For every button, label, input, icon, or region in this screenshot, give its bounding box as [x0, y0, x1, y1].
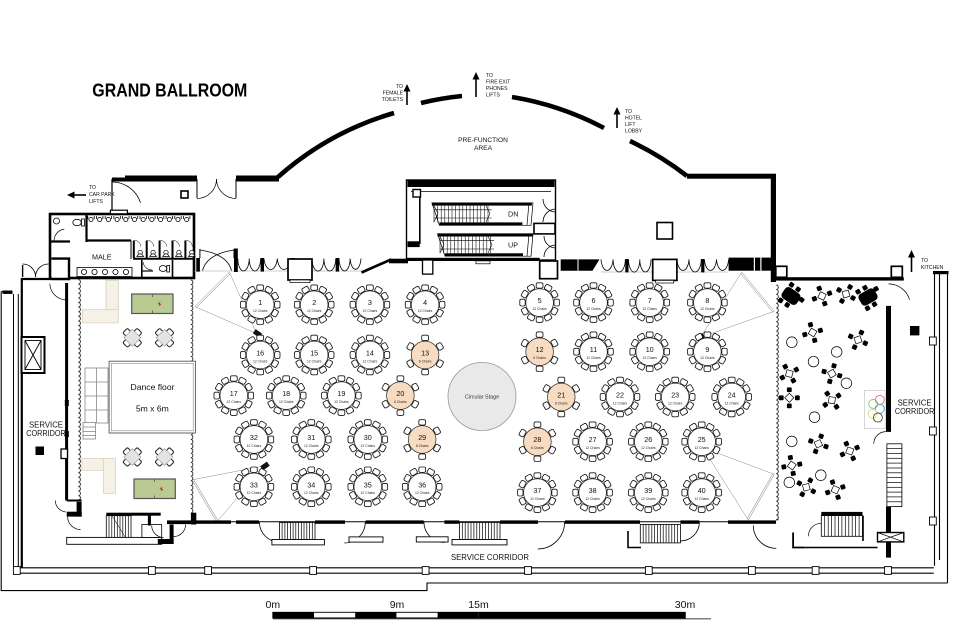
svg-text:TO: TO: [486, 73, 493, 79]
svg-text:12 Chairs: 12 Chairs: [532, 307, 547, 311]
svg-text:12 Chairs: 12 Chairs: [334, 400, 349, 404]
svg-text:17: 17: [230, 389, 238, 398]
svg-text:15: 15: [310, 349, 318, 358]
svg-text:27: 27: [589, 435, 597, 444]
svg-text:12 Chairs: 12 Chairs: [361, 491, 376, 495]
svg-text:11: 11: [590, 345, 597, 354]
svg-text:5m x 6m: 5m x 6m: [136, 403, 169, 413]
svg-text:35: 35: [364, 480, 372, 489]
svg-text:12 Chairs: 12 Chairs: [585, 446, 600, 450]
svg-text:TO: TO: [625, 109, 632, 115]
svg-text:9: 9: [705, 345, 709, 354]
svg-text:32: 32: [250, 433, 258, 442]
svg-text:12 Chairs: 12 Chairs: [700, 307, 715, 311]
svg-text:LIFTS: LIFTS: [486, 93, 500, 99]
svg-text:29: 29: [418, 433, 426, 442]
svg-text:31: 31: [307, 433, 315, 442]
svg-text:0m: 0m: [266, 599, 281, 611]
svg-text:21: 21: [557, 391, 565, 400]
svg-text:12 Chairs: 12 Chairs: [694, 497, 709, 501]
svg-text:10: 10: [646, 345, 654, 354]
svg-text:12 Chairs: 12 Chairs: [253, 309, 268, 313]
svg-text:23: 23: [671, 391, 679, 400]
svg-text:12 Chairs: 12 Chairs: [724, 401, 739, 405]
svg-text:36: 36: [418, 480, 426, 489]
svg-text:LOBBY: LOBBY: [625, 129, 643, 135]
svg-text:12 Chairs: 12 Chairs: [247, 444, 262, 448]
svg-text:TOILETS: TOILETS: [382, 97, 404, 103]
svg-text:12 Chairs: 12 Chairs: [418, 309, 433, 313]
svg-text:12 Chairs: 12 Chairs: [279, 400, 294, 404]
svg-text:12 Chairs: 12 Chairs: [668, 401, 683, 405]
svg-text:12 Chairs: 12 Chairs: [307, 359, 322, 363]
svg-text:12 Chairs: 12 Chairs: [304, 491, 319, 495]
svg-text:12 Chairs: 12 Chairs: [363, 309, 378, 313]
svg-text:FEMALE: FEMALE: [383, 91, 404, 97]
svg-text:20: 20: [396, 389, 404, 398]
svg-text:33: 33: [250, 480, 258, 489]
svg-text:Dance floor: Dance floor: [131, 382, 175, 392]
svg-text:12 Chairs: 12 Chairs: [415, 491, 430, 495]
svg-text:15m: 15m: [468, 599, 489, 611]
svg-text:CORRIDOR: CORRIDOR: [26, 429, 66, 438]
svg-text:TO: TO: [89, 185, 96, 191]
svg-text:12 Chairs: 12 Chairs: [363, 359, 378, 363]
svg-text:30: 30: [364, 433, 372, 442]
svg-text:2: 2: [312, 298, 316, 307]
svg-text:12 Chairs: 12 Chairs: [227, 400, 242, 404]
svg-text:KITCHEN: KITCHEN: [921, 265, 944, 271]
svg-text:HOTEL: HOTEL: [625, 116, 642, 122]
svg-text:18: 18: [282, 389, 290, 398]
svg-text:1: 1: [258, 298, 262, 307]
svg-text:12 Chairs: 12 Chairs: [361, 444, 376, 448]
svg-text:22: 22: [616, 391, 624, 400]
svg-text:LIFTS: LIFTS: [89, 199, 103, 205]
svg-text:12 Chairs: 12 Chairs: [253, 359, 268, 363]
svg-text:CAR PARK: CAR PARK: [89, 192, 115, 198]
svg-text:12 Chairs: 12 Chairs: [700, 356, 715, 360]
svg-text:12 Chairs: 12 Chairs: [641, 446, 656, 450]
svg-text:12 Chairs: 12 Chairs: [641, 497, 656, 501]
svg-text:12: 12: [536, 345, 544, 354]
svg-text:6 Chairs: 6 Chairs: [394, 400, 407, 404]
svg-text:GRAND BALLROOM: GRAND BALLROOM: [92, 80, 247, 101]
svg-text:6 Chairs: 6 Chairs: [419, 359, 432, 363]
svg-text:13: 13: [421, 349, 429, 358]
svg-text:6 Chairs: 6 Chairs: [531, 446, 544, 450]
svg-text:3: 3: [368, 298, 372, 307]
svg-text:6: 6: [592, 296, 596, 305]
svg-text:7: 7: [648, 296, 652, 305]
svg-text:8: 8: [705, 296, 709, 305]
svg-text:12 Chairs: 12 Chairs: [642, 356, 657, 360]
svg-text:SERVICE CORRIDOR: SERVICE CORRIDOR: [451, 552, 529, 562]
svg-text:4: 4: [423, 298, 427, 307]
svg-text:FIRE EXIT: FIRE EXIT: [486, 80, 510, 86]
svg-text:26: 26: [644, 435, 652, 444]
svg-text:12 Chairs: 12 Chairs: [304, 444, 319, 448]
svg-text:12 Chairs: 12 Chairs: [586, 307, 601, 311]
svg-text:12 Chairs: 12 Chairs: [586, 356, 601, 360]
svg-text:19: 19: [337, 389, 345, 398]
svg-text:CORRIDOR: CORRIDOR: [895, 407, 935, 416]
svg-text:DN: DN: [508, 210, 518, 219]
svg-text:30m: 30m: [675, 599, 696, 611]
svg-text:PHONES: PHONES: [486, 86, 508, 92]
svg-text:40: 40: [698, 486, 706, 495]
svg-text:AREA: AREA: [474, 145, 493, 152]
svg-text:12 Chairs: 12 Chairs: [307, 309, 322, 313]
svg-text:12 Chairs: 12 Chairs: [613, 401, 628, 405]
svg-text:6 Chairs: 6 Chairs: [555, 401, 568, 405]
svg-text:14: 14: [366, 349, 374, 358]
svg-text:34: 34: [307, 480, 315, 489]
svg-text:12 Chairs: 12 Chairs: [530, 497, 545, 501]
svg-text:38: 38: [589, 486, 597, 495]
svg-text:5: 5: [538, 296, 542, 305]
svg-text:TO: TO: [921, 258, 928, 264]
svg-text:12 Chairs: 12 Chairs: [585, 497, 600, 501]
svg-text:6 Chairs: 6 Chairs: [416, 444, 429, 448]
svg-text:16: 16: [256, 349, 264, 358]
svg-text:39: 39: [644, 486, 652, 495]
svg-text:UP: UP: [508, 241, 518, 250]
svg-text:28: 28: [533, 435, 541, 444]
svg-text:Circular Stage: Circular Stage: [465, 395, 499, 401]
svg-text:12 Chairs: 12 Chairs: [642, 307, 657, 311]
svg-text:24: 24: [728, 391, 736, 400]
svg-text:PRE-FUNCTION: PRE-FUNCTION: [458, 137, 508, 144]
svg-text:25: 25: [698, 435, 706, 444]
svg-text:37: 37: [533, 486, 541, 495]
svg-text:12 Chairs: 12 Chairs: [247, 491, 262, 495]
svg-text:LIFT: LIFT: [625, 122, 635, 128]
svg-text:9m: 9m: [390, 599, 405, 611]
svg-text:12 Chairs: 12 Chairs: [694, 446, 709, 450]
svg-text:MALE: MALE: [92, 253, 112, 262]
svg-text:6 Chairs: 6 Chairs: [533, 356, 546, 360]
svg-text:TO: TO: [396, 84, 403, 90]
